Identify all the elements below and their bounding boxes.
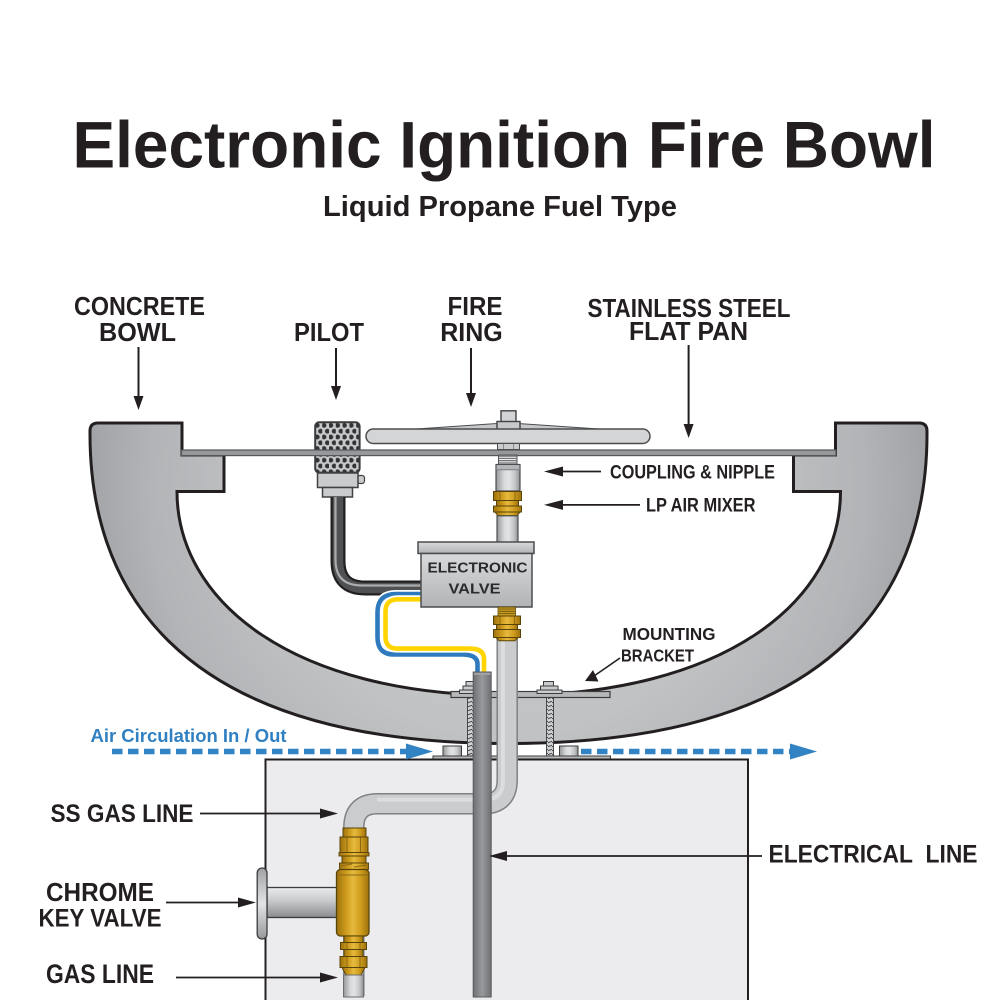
svg-text:BOWL: BOWL: [99, 317, 176, 347]
svg-text:Electronic Ignition Fire Bowl: Electronic Ignition Fire Bowl: [73, 108, 936, 182]
svg-text:COUPLING & NIPPLE: COUPLING & NIPPLE: [610, 462, 775, 484]
svg-text:Air Circulation In / Out: Air Circulation In / Out: [91, 725, 287, 746]
svg-text:RING: RING: [440, 317, 503, 347]
svg-text:KEY VALVE: KEY VALVE: [39, 905, 162, 933]
svg-text:ELECTRICAL LINE: ELECTRICAL LINE: [769, 841, 978, 869]
svg-text:GAS LINE: GAS LINE: [46, 959, 154, 989]
svg-text:Liquid Propane Fuel Type: Liquid Propane Fuel Type: [323, 191, 677, 223]
svg-text:BRACKET: BRACKET: [621, 646, 694, 666]
svg-text:PILOT: PILOT: [294, 317, 364, 347]
svg-text:ELECTRONIC: ELECTRONIC: [428, 561, 529, 577]
svg-text:SS GAS LINE: SS GAS LINE: [51, 800, 194, 828]
svg-text:VALVE: VALVE: [449, 582, 501, 598]
svg-text:MOUNTING: MOUNTING: [623, 624, 716, 644]
svg-text:FLAT PAN: FLAT PAN: [629, 316, 748, 346]
svg-text:LP AIR MIXER: LP AIR MIXER: [646, 495, 756, 517]
svg-text:CHROME: CHROME: [46, 877, 154, 907]
